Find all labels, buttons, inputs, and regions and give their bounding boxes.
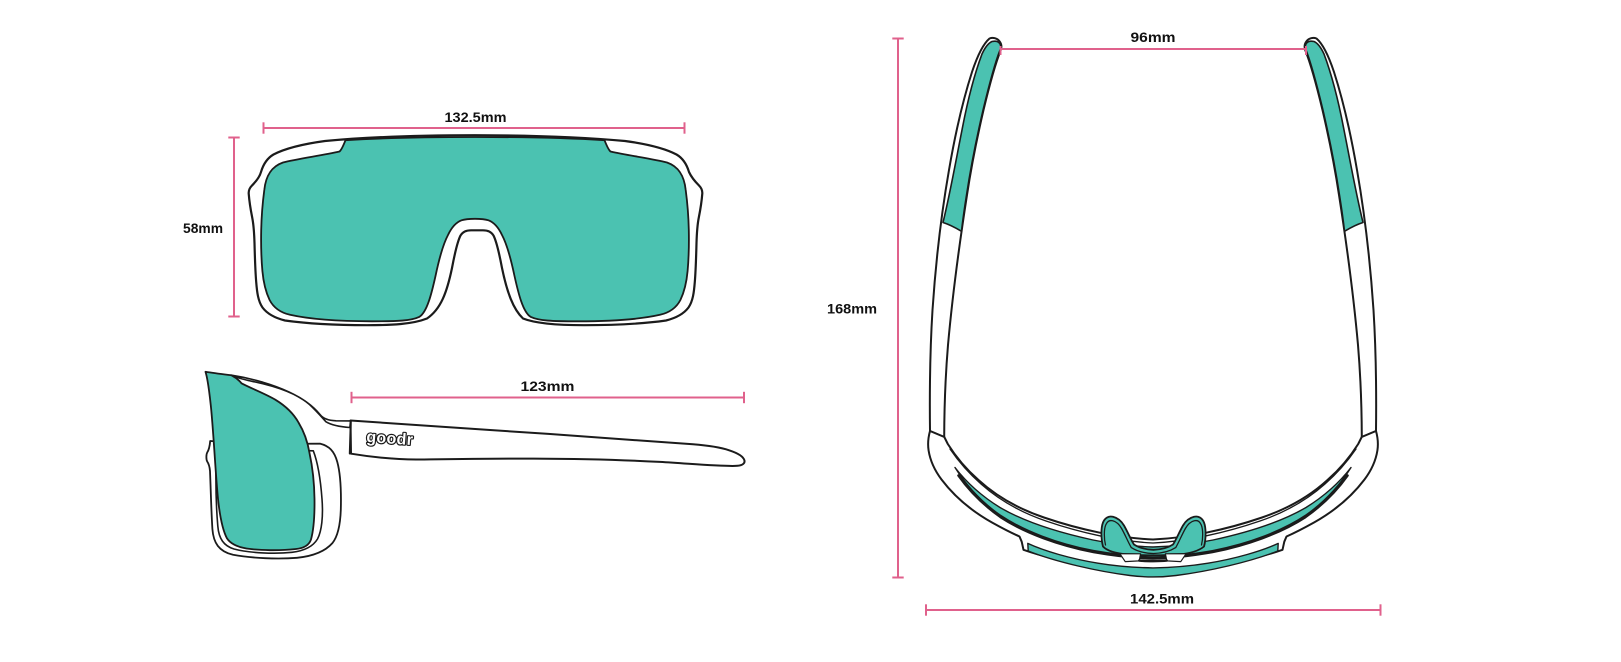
svg-text:goodr: goodr	[366, 429, 414, 449]
svg-text:58mm: 58mm	[183, 220, 223, 236]
svg-text:168mm: 168mm	[827, 301, 877, 317]
svg-text:123mm: 123mm	[521, 378, 575, 394]
svg-text:132.5mm: 132.5mm	[445, 109, 507, 125]
svg-text:96mm: 96mm	[1131, 29, 1176, 45]
svg-text:142.5mm: 142.5mm	[1130, 591, 1194, 607]
